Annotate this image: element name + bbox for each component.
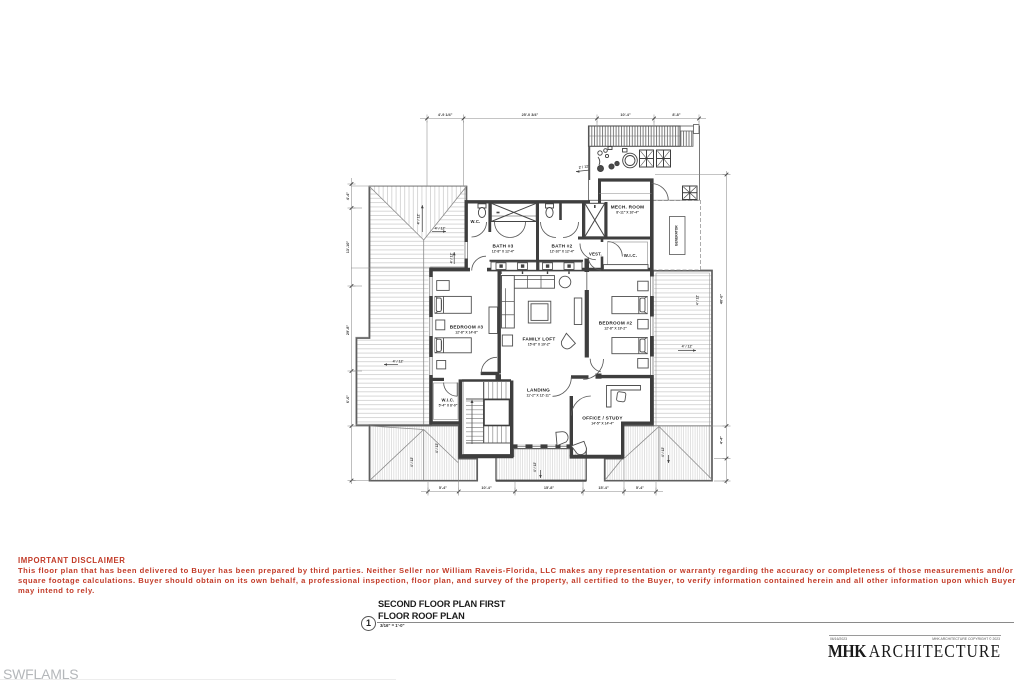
svg-text:5'-4": 5'-4" (439, 486, 447, 490)
svg-text:W.I.C.: W.I.C. (442, 398, 455, 403)
svg-text:W.I.C.: W.I.C. (624, 253, 637, 258)
svg-text:4' / 12': 4' / 12' (417, 214, 421, 225)
svg-text:BEDROOM #2: BEDROOM #2 (599, 321, 633, 326)
svg-text:8'-8": 8'-8" (672, 113, 680, 117)
svg-text:OFFICE / STUDY: OFFICE / STUDY (582, 416, 623, 421)
svg-text:4' / 12': 4' / 12' (533, 462, 537, 472)
svg-text:BEDROOM #3: BEDROOM #3 (450, 325, 484, 330)
svg-text:15′-8″ X 19′-2″: 15′-8″ X 19′-2″ (528, 343, 551, 347)
svg-text:LANDING: LANDING (527, 388, 550, 393)
svg-text:10'-4": 10'-4" (481, 486, 492, 490)
svg-text:W.C.: W.C. (470, 219, 480, 224)
svg-text:4'-4": 4'-4" (720, 436, 724, 444)
svg-text:4' / 12': 4' / 12' (661, 447, 665, 457)
svg-text:4'-4": 4'-4" (346, 192, 350, 200)
svg-text:4'-9 1/4": 4'-9 1/4" (438, 113, 453, 117)
svg-text:GENERATOR: GENERATOR (675, 225, 679, 246)
svg-text:12′-8″ X 14′-8″: 12′-8″ X 14′-8″ (455, 331, 478, 335)
svg-text:13'-10": 13'-10" (346, 241, 350, 254)
svg-text:12′-8″ X 12′-4″: 12′-8″ X 12′-4″ (492, 250, 515, 254)
svg-text:BATH #3: BATH #3 (493, 244, 514, 249)
svg-text:MECH. ROOM: MECH. ROOM (611, 205, 645, 210)
svg-text:5′-4″ X 8′-0″: 5′-4″ X 8′-0″ (439, 404, 458, 408)
svg-text:12′-8″ X 19′-2″: 12′-8″ X 19′-2″ (604, 327, 627, 331)
svg-text:6'-6": 6'-6" (346, 395, 350, 403)
svg-text:10'-4": 10'-4" (620, 113, 631, 117)
svg-text:FAMILY LOFT: FAMILY LOFT (523, 337, 556, 342)
svg-text:2' / 12': 2' / 12' (578, 164, 589, 170)
svg-text:4' / 12': 4' / 12' (435, 443, 439, 453)
svg-text:VEST.: VEST. (589, 252, 602, 257)
svg-text:15'-4": 15'-4" (598, 486, 609, 490)
svg-text:11′-2″ X 12′-11″: 11′-2″ X 12′-11″ (526, 394, 550, 398)
svg-text:BATH #2: BATH #2 (552, 244, 573, 249)
svg-text:40'-6": 40'-6" (720, 294, 724, 305)
svg-text:29'-8": 29'-8" (346, 325, 350, 336)
svg-text:4' / 12': 4' / 12' (435, 227, 446, 231)
svg-text:5'-4": 5'-4" (636, 486, 644, 490)
svg-text:4' / 12': 4' / 12' (450, 253, 454, 264)
svg-text:8′-11″ X 10′-4″: 8′-11″ X 10′-4″ (616, 211, 639, 215)
svg-text:4' / 12': 4' / 12' (682, 345, 693, 349)
svg-text:4' / 12': 4' / 12' (696, 295, 700, 305)
svg-text:14′-5″ X 14′-4″: 14′-5″ X 14′-4″ (591, 422, 614, 426)
svg-text:25'-0 3/4": 25'-0 3/4" (522, 113, 539, 117)
svg-text:4' / 12': 4' / 12' (410, 457, 414, 467)
svg-text:4' / 12': 4' / 12' (393, 360, 404, 364)
svg-text:12′-10″ X 12′-4″: 12′-10″ X 12′-4″ (550, 250, 575, 254)
svg-text:15'-8": 15'-8" (544, 486, 555, 490)
